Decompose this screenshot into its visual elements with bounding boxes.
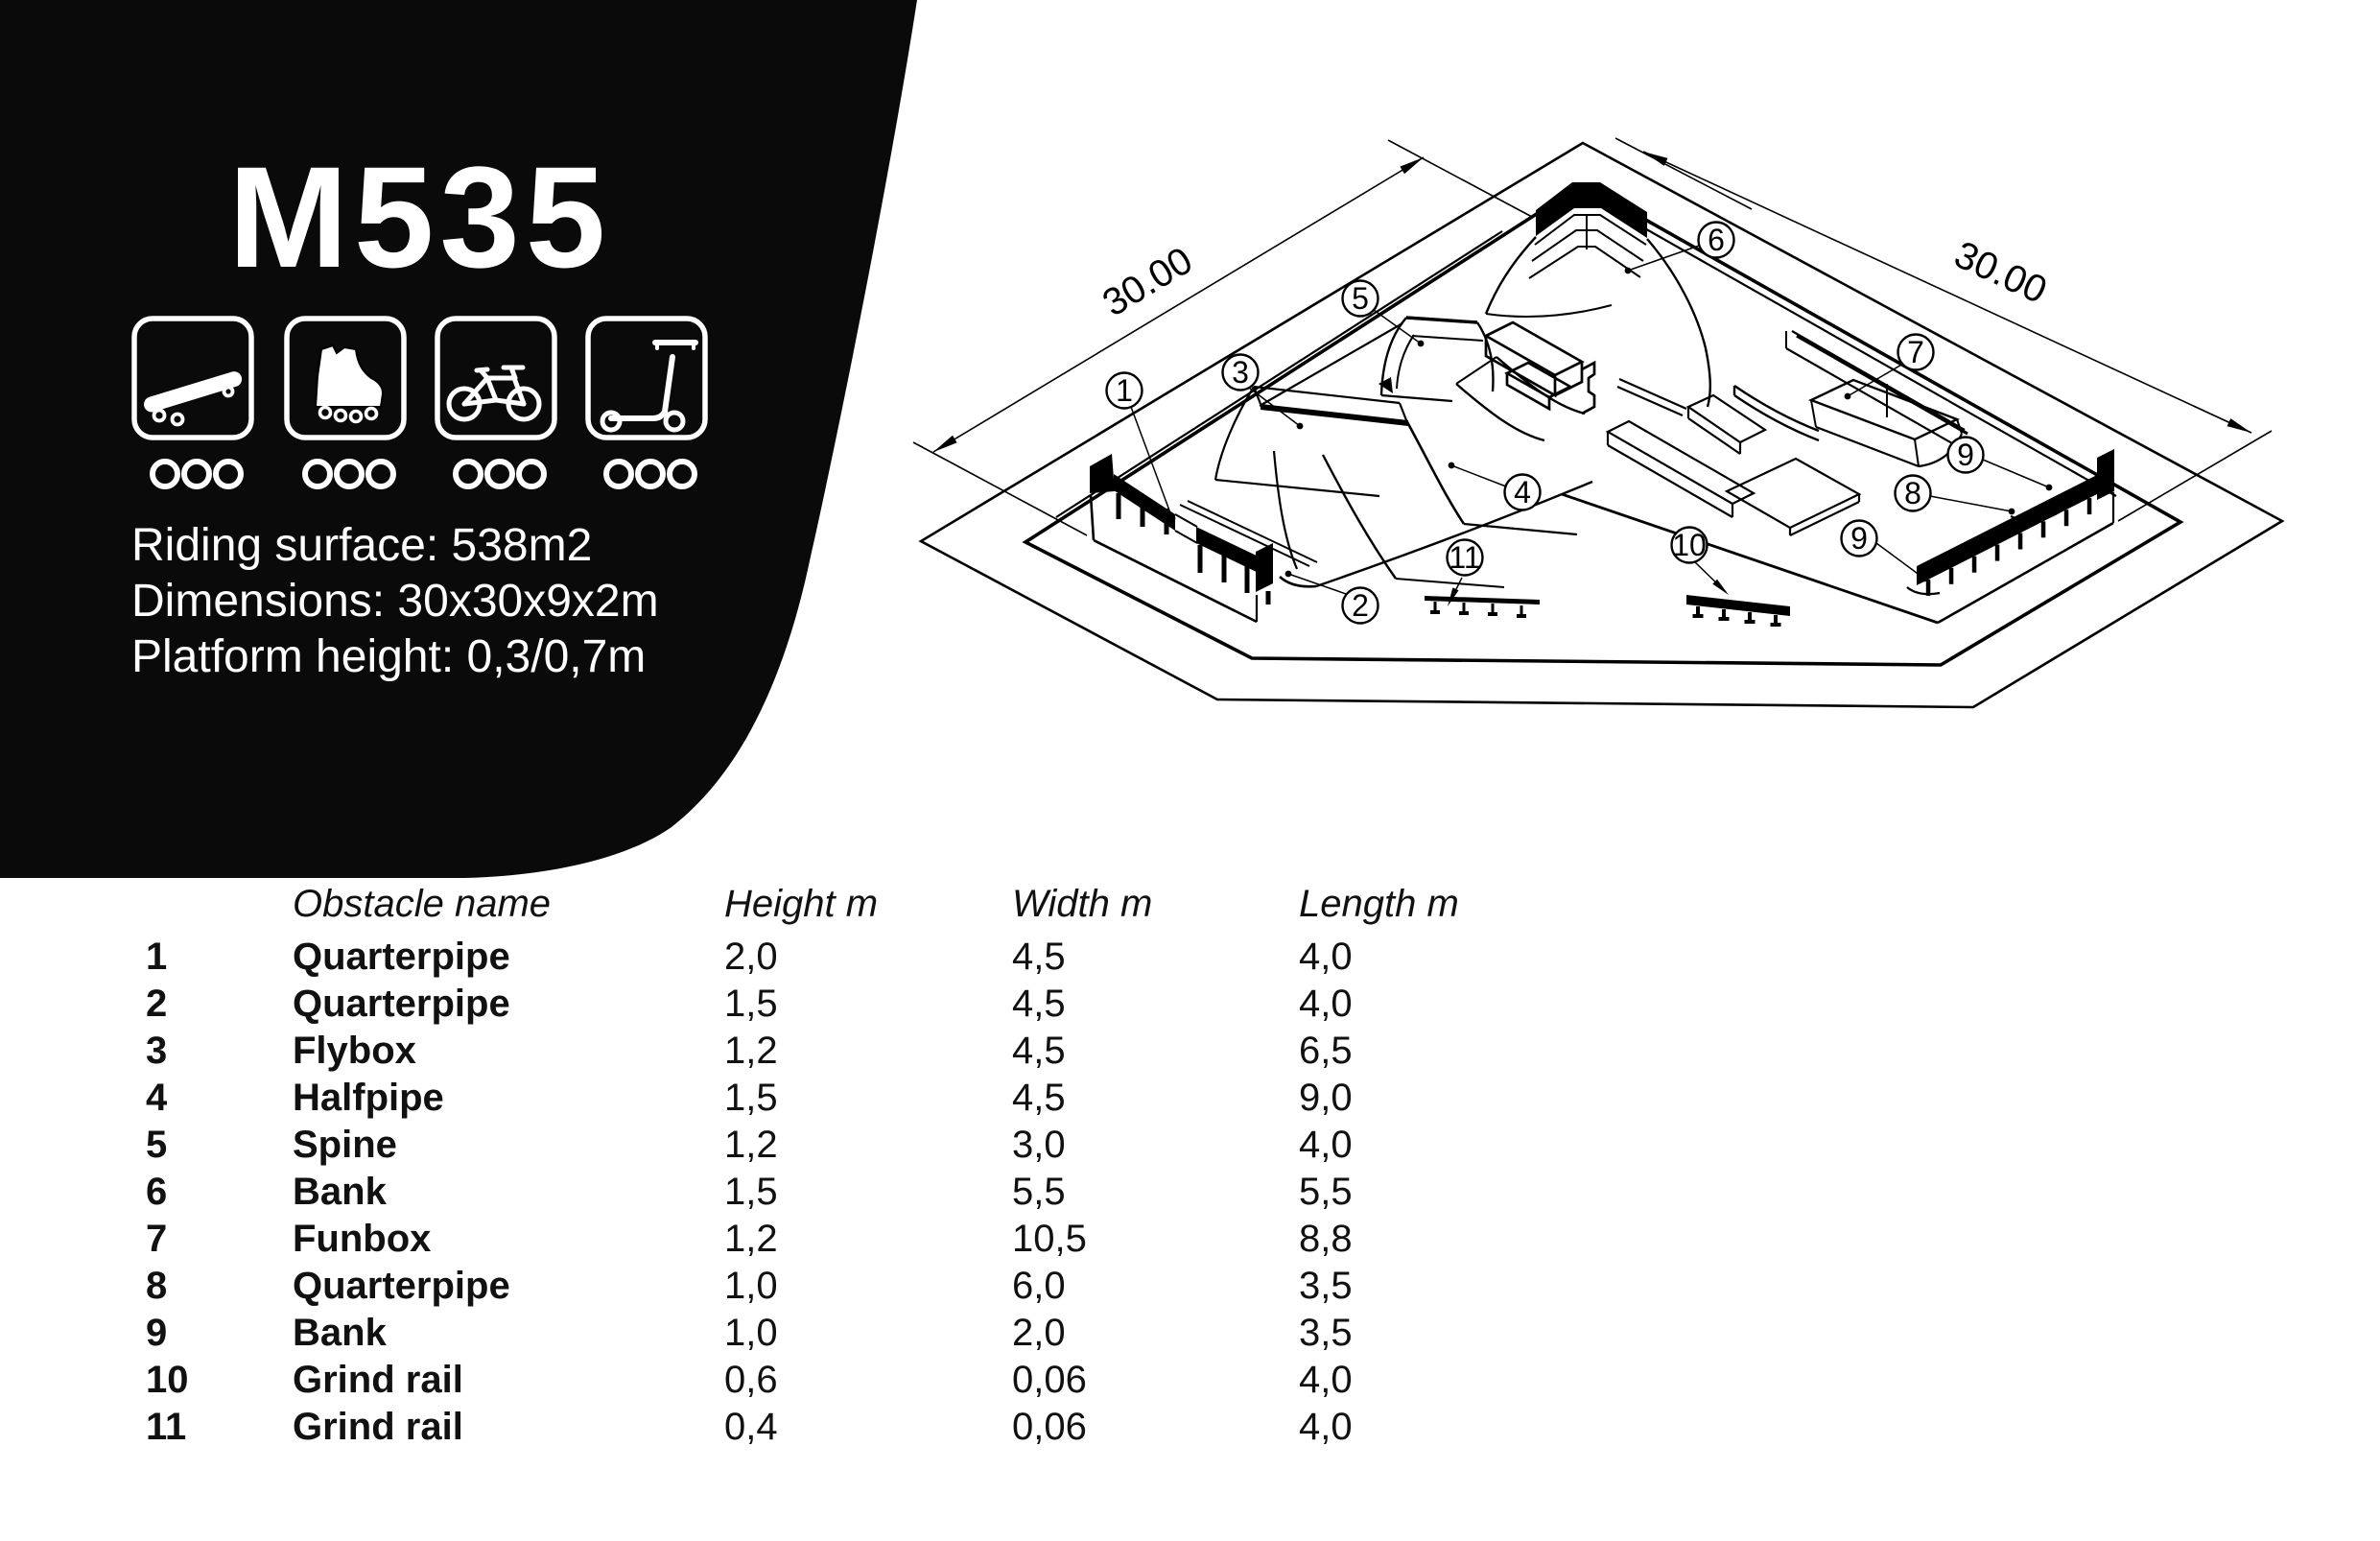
svg-text:8: 8 [1904, 476, 1921, 510]
svg-text:11: 11 [1449, 540, 1480, 575]
svg-text:7: 7 [1907, 335, 1924, 369]
svg-text:9: 9 [1850, 521, 1868, 556]
svg-text:5: 5 [1352, 281, 1369, 316]
svg-text:1: 1 [1116, 373, 1133, 408]
svg-text:3: 3 [1232, 355, 1249, 390]
svg-text:30.00: 30.00 [1096, 239, 1199, 324]
svg-text:9: 9 [1957, 438, 1974, 472]
svg-text:10: 10 [1672, 528, 1707, 562]
svg-text:4: 4 [1514, 475, 1531, 510]
svg-text:2: 2 [1352, 588, 1369, 623]
svg-text:6: 6 [1708, 223, 1725, 257]
